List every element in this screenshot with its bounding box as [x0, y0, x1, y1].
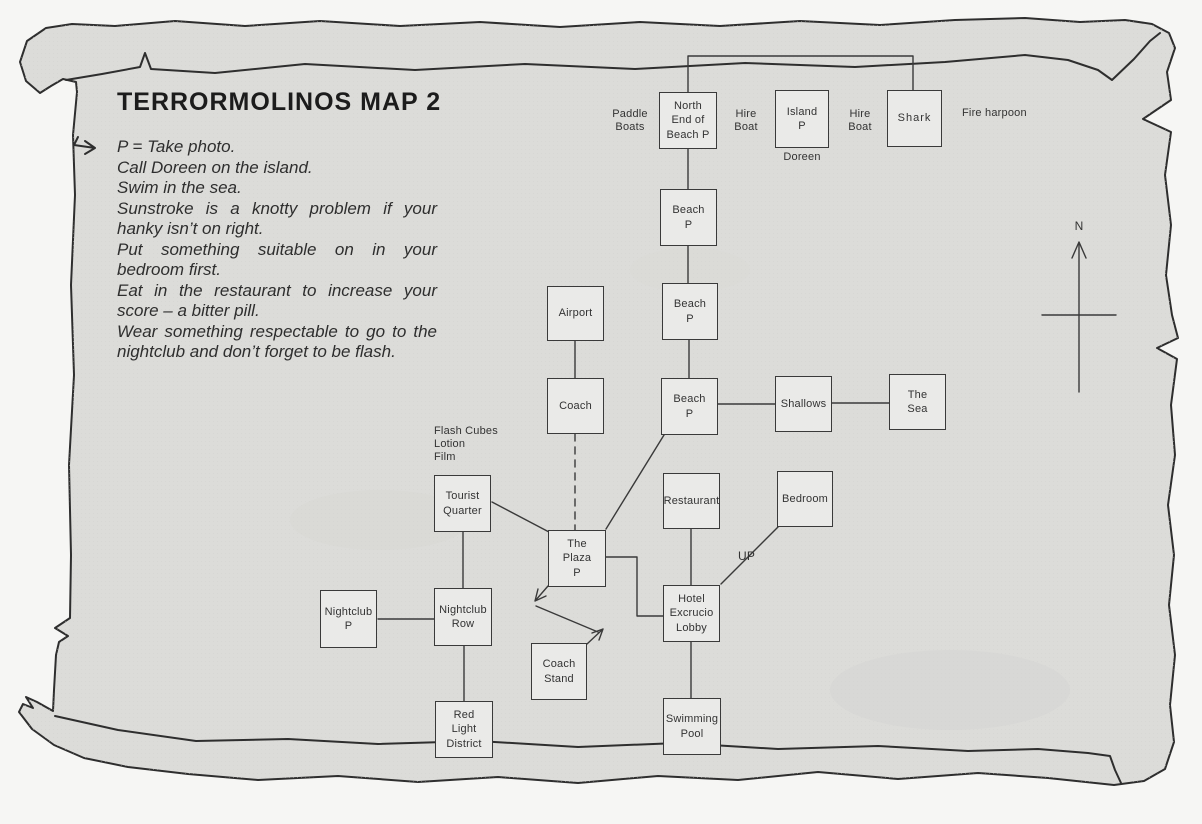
map-node-beach-3: Beach P: [661, 378, 718, 435]
paper-stain: [830, 650, 1070, 730]
map-node-coach: Coach: [547, 378, 604, 434]
map-node-nightclub-p: Nightclub P: [320, 590, 377, 648]
map-node-the-sea: The Sea: [889, 374, 946, 430]
label-up: UP: [738, 550, 755, 563]
instruction-line: Call Doreen on the island.: [117, 158, 437, 179]
label-doreen: Doreen: [775, 151, 829, 164]
map-node-north-end-of-beach: North End of Beach P: [659, 92, 717, 149]
map-node-airport: Airport: [547, 286, 604, 341]
map-node-swimming-pool: Swimming Pool: [663, 698, 721, 755]
map-node-shark: Shark: [887, 90, 942, 147]
label-paddle-boats: Paddle Boats: [602, 108, 658, 134]
map-node-bedroom: Bedroom: [777, 471, 833, 527]
map-page: TERRORMOLINOS MAP 2 P = Take photo. Call…: [0, 0, 1202, 824]
map-node-tourist-quarter: Tourist Quarter: [434, 475, 491, 532]
label-hire-boat-1: Hire Boat: [726, 108, 766, 134]
compass-north-label: N: [1069, 220, 1089, 233]
instructions-block: P = Take photo. Call Doreen on the islan…: [117, 137, 437, 363]
map-node-restaurant: Restaurant: [663, 473, 720, 529]
page-title: TERRORMOLINOS MAP 2: [117, 88, 441, 117]
label-hire-boat-2: Hire Boat: [840, 108, 880, 134]
instruction-line: Put something suitable on in your bedroo…: [117, 240, 437, 281]
label-flash-cubes-lotion-film: Flash Cubes Lotion Film: [434, 425, 498, 464]
map-node-hotel-excrucio-lobby: Hotel Excrucio Lobby: [663, 585, 720, 642]
instruction-line: Swim in the sea.: [117, 178, 437, 199]
instruction-line: P = Take photo.: [117, 137, 437, 158]
map-node-nightclub-row: Nightclub Row: [434, 588, 492, 646]
map-node-shallows: Shallows: [775, 376, 832, 432]
instruction-line: Sunstroke is a knotty problem if your ha…: [117, 199, 437, 240]
instruction-line: Wear something respectable to go to the …: [117, 322, 437, 363]
map-node-beach-2: Beach P: [662, 283, 718, 340]
instruction-line: Eat in the restaurant to increase your s…: [117, 281, 437, 322]
map-node-the-plaza: The Plaza P: [548, 530, 606, 587]
map-node-coach-stand: Coach Stand: [531, 643, 587, 700]
map-node-red-light-district: Red Light District: [435, 701, 493, 758]
label-fire-harpoon: Fire harpoon: [962, 107, 1027, 120]
map-node-beach-1: Beach P: [660, 189, 717, 246]
map-node-island: Island P: [775, 90, 829, 148]
